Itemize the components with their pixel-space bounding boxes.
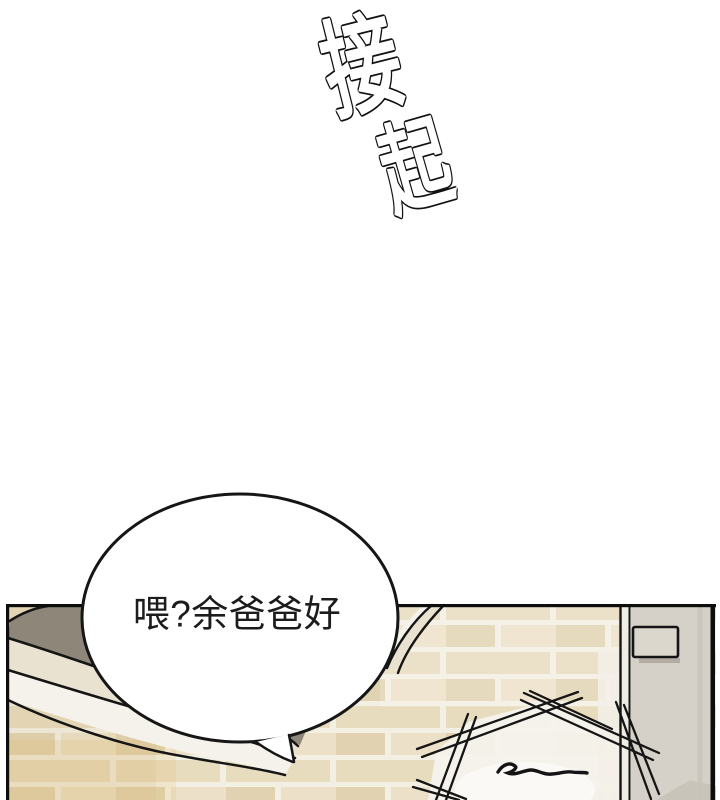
panel-border-right [711,604,716,800]
speech-bubble-text: 喂?余爸爸好 [133,594,342,635]
panel-border-left [6,604,9,800]
door-handle-shadow [639,658,680,663]
comic-page-canvas: 喂?余爸爸好 接 起 [0,0,720,800]
comic-page: 喂?余爸爸好 接 起 [0,0,720,800]
door-handle [633,627,678,657]
